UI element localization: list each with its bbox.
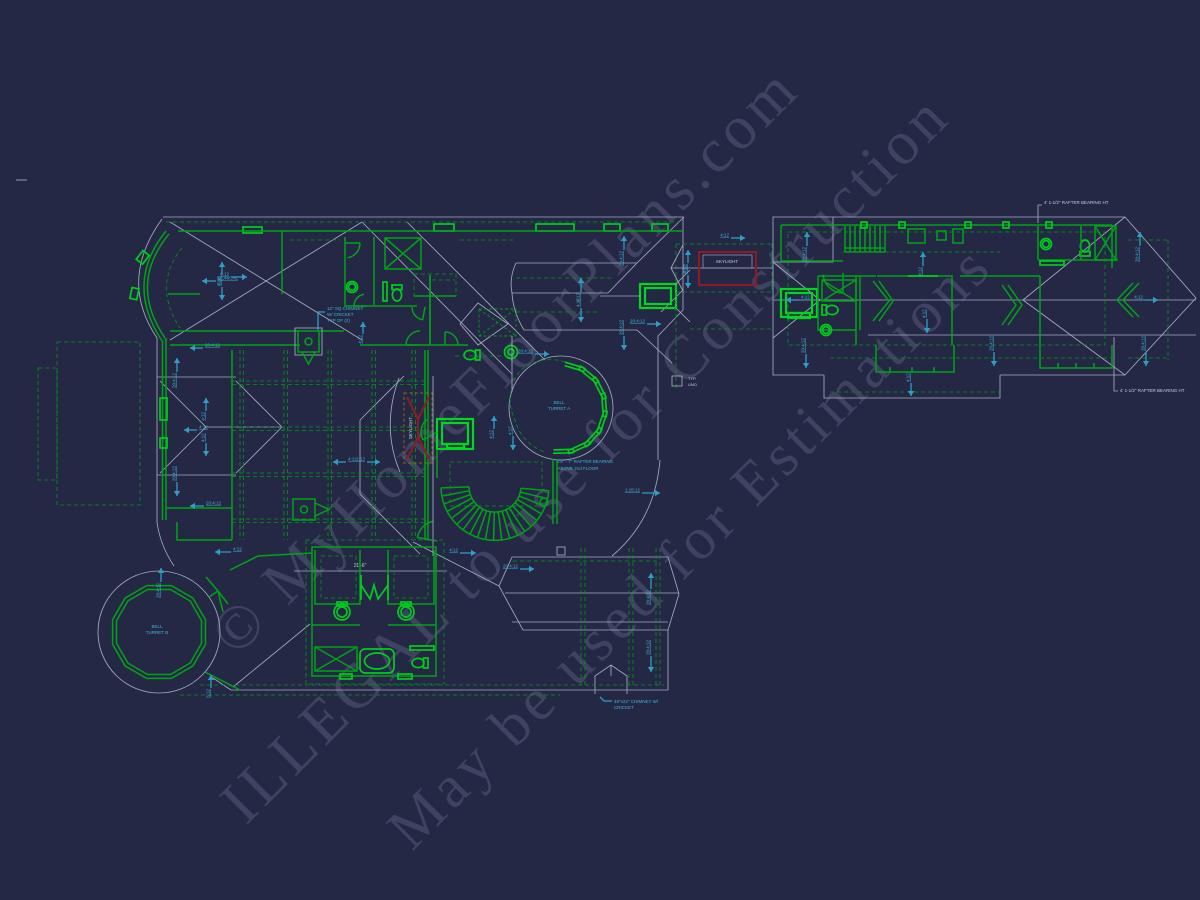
- svg-text:BELL: BELL: [151, 624, 163, 629]
- svg-text:20:4:12: 20:4:12: [619, 319, 624, 335]
- svg-text:20:4:12: 20:4:12: [156, 583, 161, 599]
- svg-text:4:12: 4:12: [489, 430, 494, 439]
- svg-text:ABOVE 2nd FLOOR: ABOVE 2nd FLOOR: [557, 466, 599, 471]
- svg-text:1:12: 1:12: [356, 457, 365, 462]
- svg-text:4:12: 4:12: [233, 547, 242, 552]
- svg-text:CRICKET: CRICKET: [614, 705, 634, 710]
- svg-text:4' 1-1/2" RAFTER BEARING HT: 4' 1-1/2" RAFTER BEARING HT: [1120, 388, 1185, 393]
- svg-text:4:12: 4:12: [683, 265, 688, 274]
- svg-text:48"x22" CHIMNEY W/: 48"x22" CHIMNEY W/: [614, 699, 659, 704]
- svg-text:20:4:12: 20:4:12: [206, 501, 222, 506]
- svg-text:20:4:12: 20:4:12: [619, 251, 624, 267]
- svg-text:4:12: 4:12: [201, 433, 206, 442]
- svg-text:BELL: BELL: [553, 400, 565, 405]
- svg-text:20:4:12: 20:4:12: [503, 564, 519, 569]
- svg-text:4:12: 4:12: [508, 426, 513, 435]
- svg-text:UNO: UNO: [688, 382, 697, 387]
- svg-text:4:12: 4:12: [918, 267, 923, 276]
- svg-text:20:4:12: 20:4:12: [630, 319, 646, 324]
- svg-text:1:15:12: 1:15:12: [625, 488, 641, 493]
- svg-text:20:4:12: 20:4:12: [518, 349, 534, 354]
- svg-text:TURRET A: TURRET A: [548, 406, 570, 411]
- svg-text:20:4:12: 20:4:12: [646, 590, 651, 606]
- svg-text:4:12: 4:12: [720, 233, 729, 238]
- svg-text:20:4:12: 20:4:12: [172, 373, 177, 389]
- svg-text:6:12: 6:12: [217, 277, 222, 286]
- svg-text:6'8" - 7" RAFTER BEARING: 6'8" - 7" RAFTER BEARING: [557, 459, 614, 464]
- svg-text:20:4:12: 20:4:12: [1135, 247, 1140, 263]
- svg-text:SKYLIGHT: SKYLIGHT: [408, 417, 413, 440]
- svg-text:20:4:12: 20:4:12: [801, 337, 806, 353]
- svg-text:4:12: 4:12: [801, 295, 810, 300]
- svg-text:4:12: 4:12: [906, 373, 911, 382]
- svg-text:4:12: 4:12: [576, 293, 581, 302]
- svg-text:20:4:12: 20:4:12: [1141, 335, 1146, 351]
- svg-text:20:4:12: 20:4:12: [989, 335, 994, 351]
- svg-text:20:4:12: 20:4:12: [802, 247, 807, 263]
- svg-text:4:12: 4:12: [201, 412, 206, 421]
- svg-text:TYP OF (2): TYP OF (2): [327, 318, 350, 323]
- svg-text:20:4:12: 20:4:12: [205, 343, 221, 348]
- svg-text:4:12: 4:12: [922, 309, 927, 318]
- svg-text:SKYLIGHT: SKYLIGHT: [716, 259, 739, 264]
- svg-text:4' 1-1/2" RAFTER BEARING HT: 4' 1-1/2" RAFTER BEARING HT: [1044, 200, 1109, 205]
- svg-text:TYP.: TYP.: [688, 376, 696, 381]
- svg-text:4:12: 4:12: [449, 548, 458, 553]
- svg-text:12" SQ CHIMNEY: 12" SQ CHIMNEY: [327, 306, 363, 311]
- svg-text:4:12: 4:12: [199, 425, 208, 430]
- svg-text:TURRET B: TURRET B: [146, 630, 168, 635]
- svg-text:20:4:12: 20:4:12: [172, 465, 177, 481]
- svg-text:4:12: 4:12: [1134, 295, 1143, 300]
- svg-text:W/ CRICKET: W/ CRICKET: [327, 312, 354, 317]
- svg-text:6:12: 6:12: [206, 689, 211, 698]
- svg-text:4:12: 4:12: [358, 335, 363, 344]
- svg-text:ELEV: ELEV: [794, 314, 805, 319]
- svg-text:20:4:12: 20:4:12: [646, 639, 651, 655]
